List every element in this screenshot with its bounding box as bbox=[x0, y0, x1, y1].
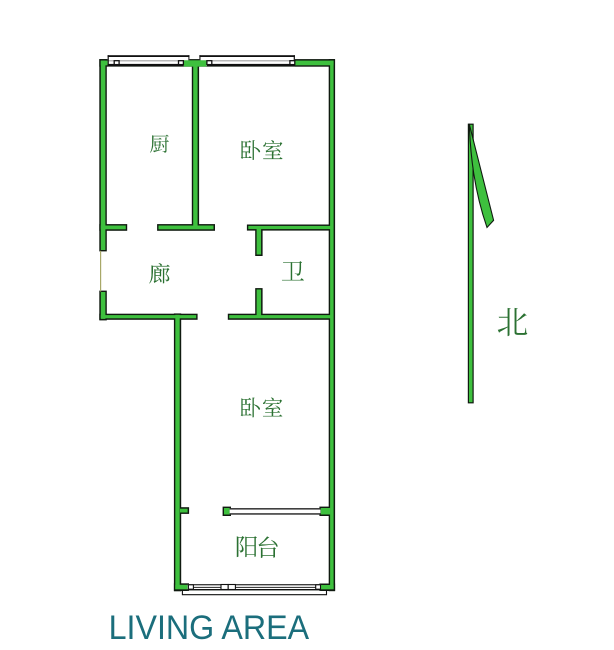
svg-text:LIVING AREA: LIVING AREA bbox=[109, 609, 310, 645]
